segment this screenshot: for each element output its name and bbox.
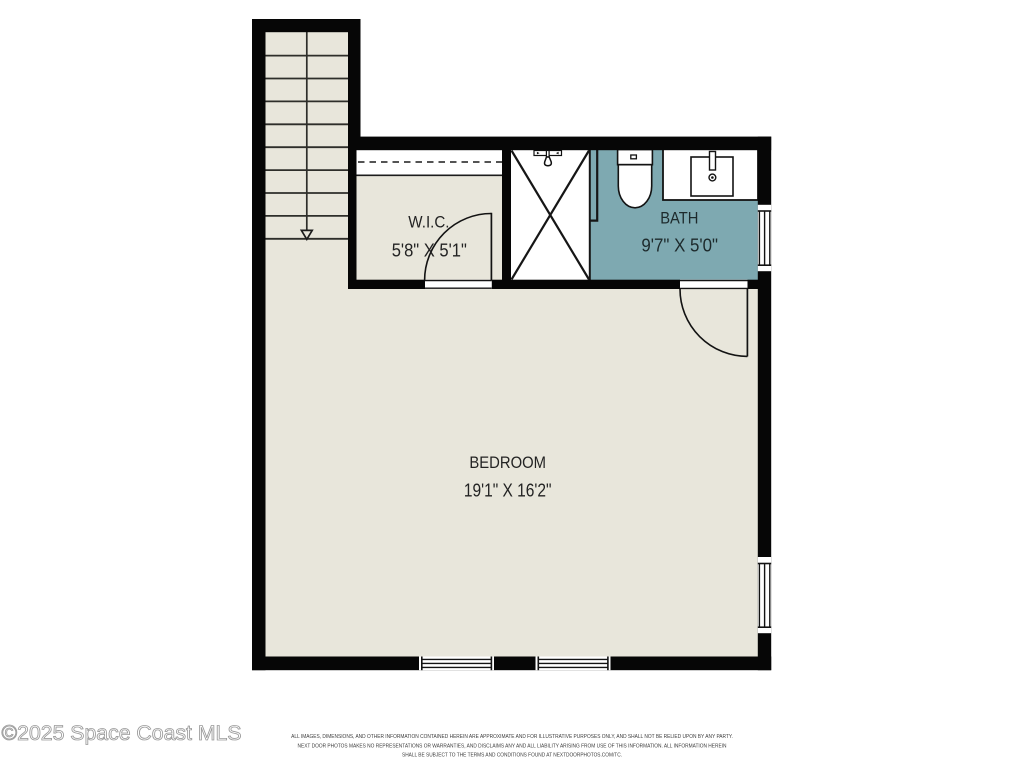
svg-text:W.I.C.: W.I.C. bbox=[408, 212, 449, 231]
svg-text:BEDROOM: BEDROOM bbox=[469, 453, 546, 472]
svg-text:BATH: BATH bbox=[660, 210, 698, 228]
svg-text:9'7" X 5'0": 9'7" X 5'0" bbox=[641, 236, 718, 256]
svg-text:©2025 Space Coast MLS: ©2025 Space Coast MLS bbox=[2, 722, 242, 745]
svg-text:5'8" X 5'1": 5'8" X 5'1" bbox=[392, 240, 467, 260]
svg-text:19'1" X 16'2": 19'1" X 16'2" bbox=[464, 480, 552, 501]
svg-text:SHALL BE SUBJECT TO THE TERMS: SHALL BE SUBJECT TO THE TERMS AND CONDIT… bbox=[402, 752, 622, 758]
svg-text:NEXT DOOR PHOTOS MAKES NO REPR: NEXT DOOR PHOTOS MAKES NO REPRESENTATION… bbox=[298, 743, 727, 749]
svg-text:ALL IMAGES, DIMENSIONS, AND OT: ALL IMAGES, DIMENSIONS, AND OTHER INFORM… bbox=[291, 734, 733, 740]
